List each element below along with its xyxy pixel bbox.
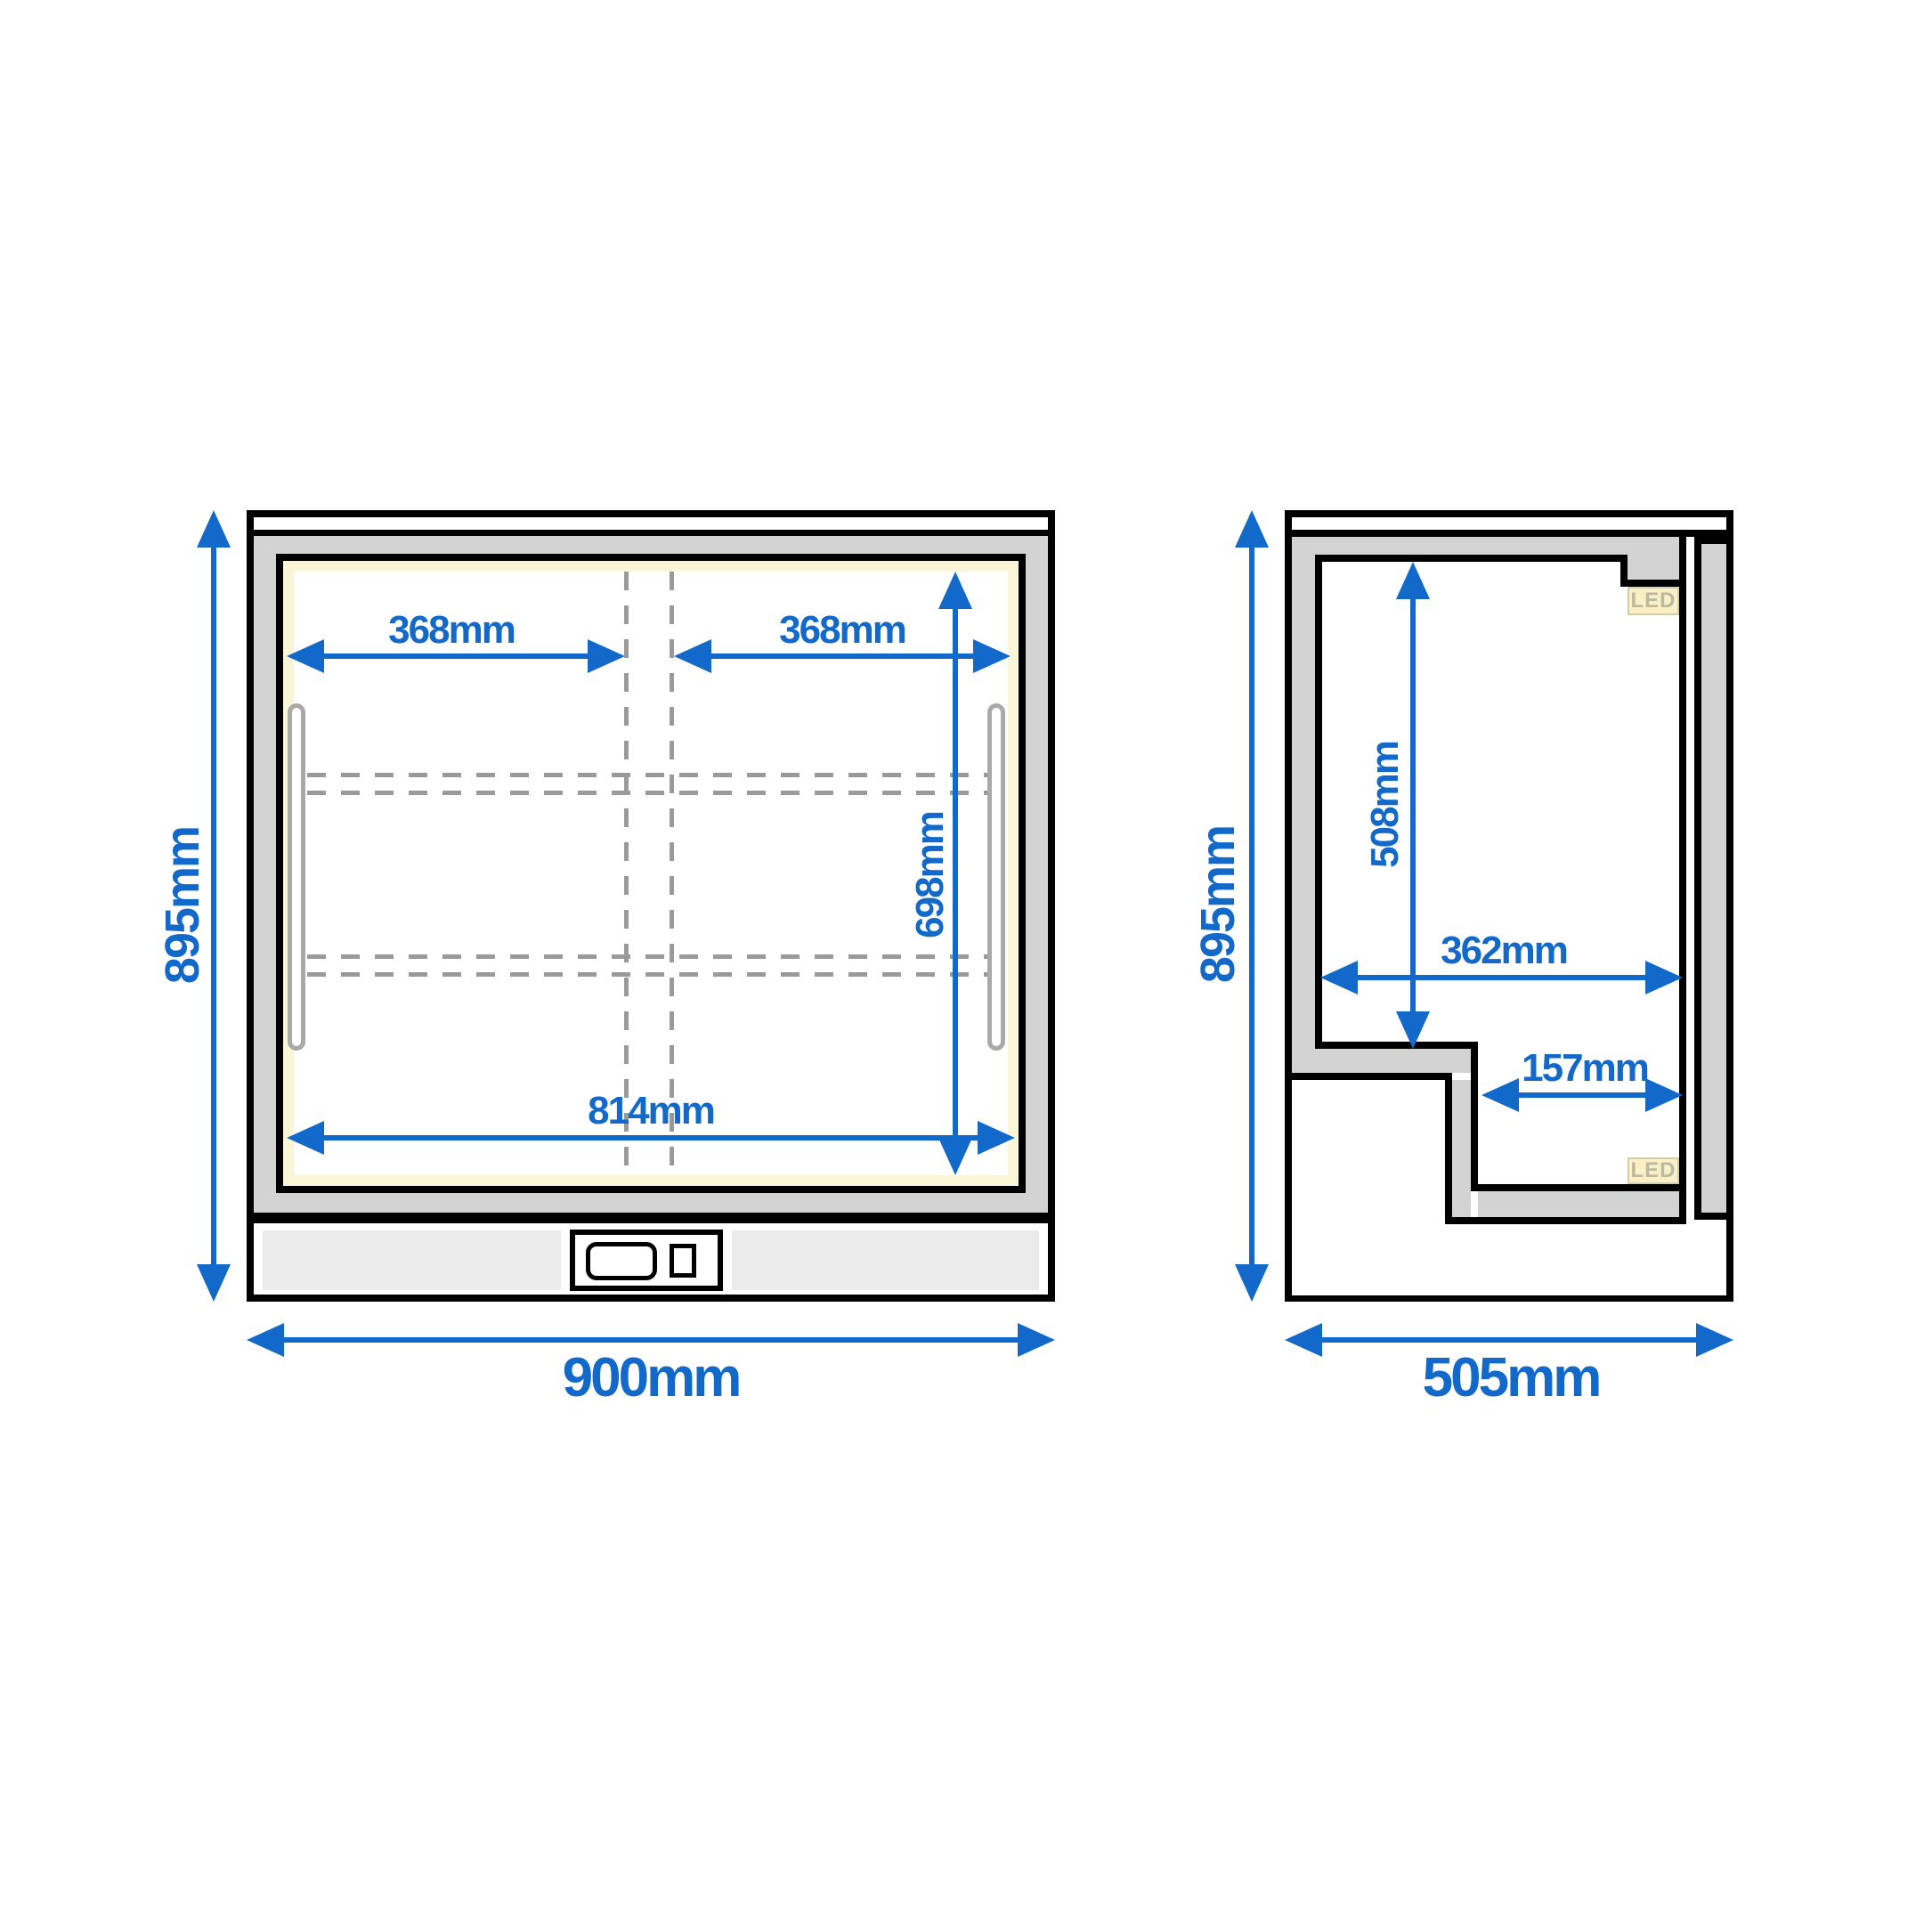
dim-arrow-side-overall-depth: 505mm [0,0,1932,1932]
dim-label-side-overall-depth: 505mm [1423,1351,1600,1406]
side-view: LED LED 895mm 508mm [0,0,1932,1932]
fridge-dimension-diagram: 895mm 900mm 368mm 368mm 698m [0,0,1932,1932]
